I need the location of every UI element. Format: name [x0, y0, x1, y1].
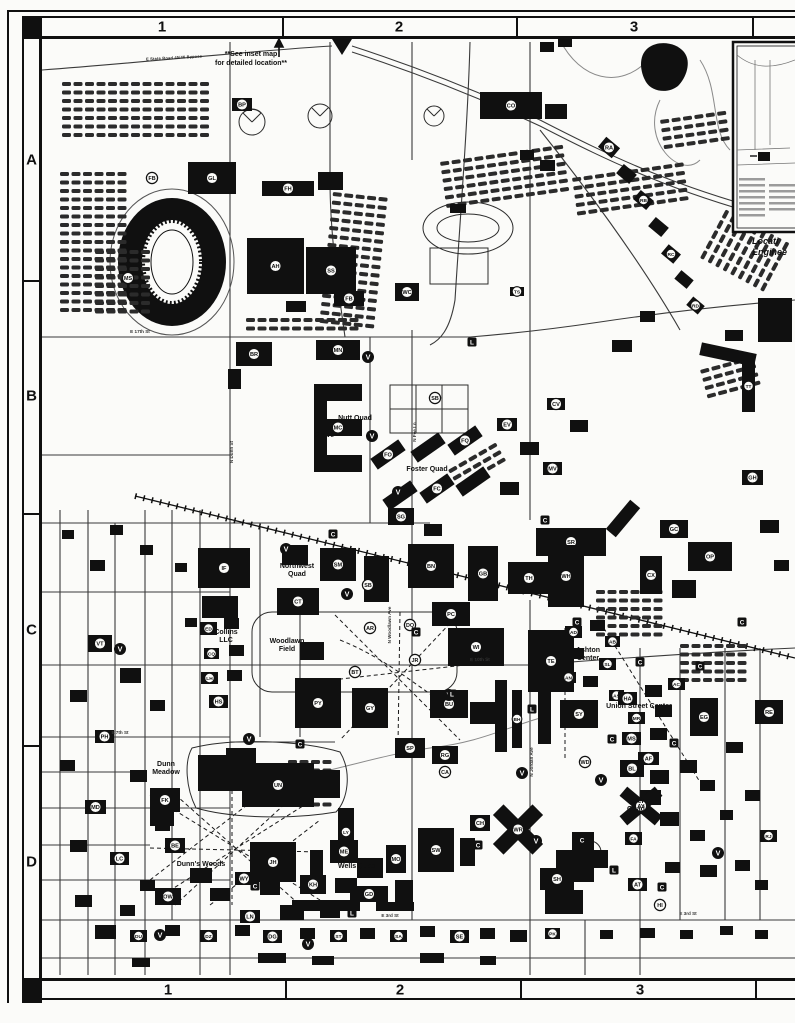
building: RB	[633, 189, 655, 210]
building-footprint	[229, 645, 244, 656]
building-footprint	[660, 812, 679, 826]
building-code-text: BR	[250, 352, 258, 358]
building-footprint	[455, 466, 490, 496]
building-code-text: BN	[427, 564, 435, 570]
building	[480, 956, 496, 965]
building-code-text: GC	[670, 527, 678, 533]
building: SW	[418, 828, 454, 872]
building	[726, 742, 743, 753]
building: AT	[628, 878, 647, 891]
building-code-text: TS	[514, 289, 521, 295]
building	[318, 172, 343, 190]
grid-corner-bottomleft	[22, 978, 42, 1003]
building: SY	[560, 700, 598, 728]
building-code: EV	[501, 419, 512, 430]
building-code: AH	[270, 260, 281, 271]
building-code: RC	[666, 249, 676, 259]
building-code-text: FB	[345, 296, 352, 302]
building-footprint	[700, 865, 717, 877]
building-code-text: SG	[397, 514, 405, 520]
building-code: SG	[395, 511, 406, 522]
building-code: BP	[236, 99, 247, 110]
parking-lot	[440, 145, 569, 208]
building: CO	[480, 92, 542, 119]
building-footprint	[510, 930, 527, 942]
bus-stop-letter: C	[660, 884, 665, 891]
building	[302, 770, 340, 798]
building	[455, 466, 490, 496]
building-code-text: VT	[96, 641, 104, 647]
grid-row-label-B: B	[26, 388, 37, 405]
building-code-text: GH	[748, 475, 756, 481]
building-footprint	[202, 596, 238, 618]
building-footprint	[140, 545, 153, 555]
building-footprint	[520, 442, 539, 455]
building-code-text: CV	[552, 402, 560, 408]
building-code-text: LC	[116, 856, 123, 862]
building-code: BR	[248, 348, 259, 359]
building-footprint	[500, 482, 519, 495]
building	[720, 926, 733, 935]
building	[500, 482, 519, 495]
code-circle-text: CA	[441, 770, 449, 776]
visitor-parking-v: V	[345, 590, 350, 599]
code-circle-text: AR	[366, 626, 374, 632]
grid-divider	[24, 513, 39, 515]
building-code-text: RE	[765, 710, 773, 716]
building: FH	[262, 181, 314, 196]
building-code: MD	[90, 801, 101, 812]
building-code-text: RB	[640, 198, 647, 204]
building-code: VT	[94, 638, 105, 649]
building-code: BE	[169, 840, 180, 851]
building	[226, 748, 256, 764]
building-code-text: TH	[525, 576, 532, 582]
building-code-text: WY	[239, 876, 248, 882]
building	[424, 524, 442, 536]
building-code-text: OP	[706, 554, 714, 560]
building-footprint	[312, 956, 334, 965]
building-code: HS	[213, 696, 224, 707]
building: AN	[561, 672, 576, 683]
building-code: PC	[445, 608, 456, 619]
building-code: AC	[672, 679, 682, 689]
building: RC	[661, 244, 682, 265]
bus-stop-letter: C	[740, 619, 745, 626]
building-code: WC	[401, 286, 412, 297]
code-circle-text: WD	[581, 760, 590, 766]
building: CQ	[204, 648, 219, 659]
building-code: RD	[691, 301, 701, 311]
building: MR	[628, 712, 645, 724]
visitor-parking-v: V	[534, 837, 539, 846]
building-footprint	[318, 172, 343, 190]
building-code-text: HA	[623, 696, 631, 702]
building	[95, 925, 116, 939]
building	[420, 953, 444, 963]
grid-col-label-1: 1	[158, 19, 166, 36]
building-code: ST	[334, 931, 344, 941]
building-footprint	[450, 204, 466, 213]
building-code-text: GD	[365, 892, 373, 898]
building: WH	[548, 545, 584, 607]
building	[120, 668, 141, 683]
building-code-text: AT	[634, 882, 642, 888]
building-code-text: CO	[507, 103, 516, 109]
grid-divider	[24, 280, 39, 282]
building	[755, 880, 768, 890]
building-footprint	[210, 888, 230, 901]
building: DU	[130, 930, 147, 942]
building-code: AB	[608, 637, 618, 647]
building-code: LY	[341, 827, 351, 837]
building: SL	[599, 658, 616, 670]
building-code-text: KH	[309, 882, 317, 888]
grid-col-label-bottom-2: 2	[396, 981, 404, 998]
street-label: E 17th St	[130, 329, 150, 334]
building-footprint	[640, 928, 655, 938]
building-code: MO	[390, 853, 401, 864]
building-code: GD	[363, 888, 374, 899]
inset-caption: Locati Enginee	[752, 236, 795, 259]
area-label: AshtonCenter	[576, 647, 600, 662]
building-footprint	[132, 958, 150, 967]
building	[520, 442, 539, 455]
code-circle-text: SB	[431, 396, 439, 402]
building-code: FK	[159, 794, 170, 805]
building-footprint	[720, 926, 733, 935]
building-code-text: GL	[208, 176, 216, 182]
building	[190, 868, 212, 883]
area-label: CollinsLLC	[214, 629, 237, 644]
building-footprint	[70, 690, 87, 702]
building-code: ME	[338, 846, 349, 857]
building	[120, 905, 135, 916]
building-code: RE	[763, 706, 774, 717]
bus-stop-letter: C	[331, 531, 336, 538]
building	[700, 865, 717, 877]
building-code: SY	[573, 708, 584, 719]
building-footprint	[224, 618, 239, 629]
building-code-text: CQ	[208, 651, 215, 657]
pond-blob	[641, 43, 688, 91]
building-footprint	[640, 311, 655, 322]
building-code: SM	[332, 559, 343, 570]
building-code: CO	[505, 100, 516, 111]
building-code: WI	[470, 641, 481, 652]
building-footprint	[310, 850, 323, 878]
building	[520, 150, 534, 160]
building	[314, 384, 327, 472]
code-circle-text: FB	[148, 176, 155, 182]
building: CX	[640, 556, 662, 594]
building-code-text: SE	[456, 934, 464, 940]
building-footprint	[226, 748, 256, 764]
building-code-text: MO	[391, 857, 401, 863]
visitor-parking-v: V	[599, 776, 604, 785]
building-code: WH	[560, 570, 571, 581]
inset-caption-line1: Locati	[752, 236, 795, 247]
building: FO	[370, 438, 407, 470]
building-footprint	[227, 670, 242, 681]
building	[227, 670, 242, 681]
building-footprint	[680, 760, 697, 773]
building: JH	[250, 842, 296, 882]
building	[75, 895, 92, 907]
area-label: Foster Quad	[406, 466, 447, 473]
building: GH	[742, 470, 763, 485]
building-code-text: GB	[479, 571, 487, 577]
area-label: Nutt Quad	[338, 415, 372, 422]
building-code-text: BU	[445, 702, 453, 708]
building	[690, 830, 705, 841]
building	[612, 340, 632, 352]
building	[672, 580, 696, 598]
building-code-text: RA	[605, 145, 613, 151]
building-code: AT	[632, 879, 643, 890]
building: GD	[350, 886, 388, 902]
building-footprint	[360, 928, 375, 939]
building-footprint	[420, 926, 435, 937]
building-code-text: JH	[269, 860, 276, 866]
building: BE	[165, 838, 185, 853]
building-code: AN	[564, 673, 574, 683]
area-label: WoodlawnField	[270, 638, 305, 653]
building-footprint	[75, 895, 92, 907]
building-code-text: AH	[271, 264, 279, 270]
road-junction-wedge	[332, 39, 352, 55]
street-label: E 10th St	[470, 657, 490, 662]
building-code-text: PC	[447, 612, 455, 618]
building-footprint	[520, 150, 534, 160]
building: DZ	[200, 930, 217, 942]
building-footprint	[470, 702, 498, 724]
visitor-parking-v: V	[716, 849, 721, 858]
building-footprint	[650, 770, 669, 784]
building-footprint	[120, 905, 135, 916]
building: VT	[88, 635, 112, 652]
building-code-text: AB	[609, 639, 616, 645]
building-code: MN	[332, 344, 343, 355]
building-code-text: AD	[570, 630, 577, 636]
building	[229, 645, 244, 656]
building: MN	[316, 340, 360, 360]
building	[150, 810, 174, 826]
building-code: RG	[439, 749, 450, 760]
building: RD	[685, 295, 705, 315]
building	[538, 692, 551, 744]
building	[286, 301, 306, 312]
building: DG	[263, 930, 282, 943]
building: GL	[188, 162, 236, 194]
grid-divider	[516, 18, 518, 36]
building: LH	[201, 672, 218, 684]
building-footprint	[258, 953, 286, 963]
building-code: TT	[744, 381, 754, 391]
building-code-text: DZ	[205, 934, 211, 940]
building	[175, 563, 187, 572]
building: OP	[688, 542, 732, 571]
parking-lot	[62, 82, 209, 137]
scanned-campus-map-page: 123 ABCD 123	[0, 0, 795, 1023]
building: GC	[660, 520, 688, 538]
building: ME	[330, 840, 358, 863]
building-code: SA	[394, 931, 404, 941]
building-code: MV	[547, 463, 558, 474]
campus-map-canvas: GLFHBPCORARBRCRDAHSSFBWCTSBRMNMCFOFQFCEV…	[42, 39, 795, 978]
see-inset-note: **See inset map for detailed location**	[196, 50, 306, 69]
building	[70, 840, 87, 852]
building-code: IF	[218, 562, 229, 573]
building-footprint	[590, 620, 605, 631]
building-code: FO	[382, 449, 393, 460]
building-footprint	[150, 700, 165, 711]
bus-stop-letter: L	[530, 706, 534, 713]
building-code: UN	[272, 779, 283, 790]
area-label: Grove	[314, 432, 334, 439]
building-code-text: FA	[630, 836, 637, 842]
building: BP	[232, 98, 252, 111]
building-footprint	[758, 298, 792, 342]
building	[570, 420, 588, 432]
building-footprint	[420, 953, 444, 963]
building	[310, 850, 323, 878]
building: BR	[236, 342, 272, 366]
street-label: E 3rd St	[381, 913, 399, 918]
building: ST	[330, 930, 347, 942]
building	[680, 760, 697, 773]
building: AB	[605, 636, 620, 647]
building-footprint	[570, 420, 588, 432]
building	[645, 685, 662, 697]
building-code-text: LN	[246, 914, 253, 920]
building: SA	[390, 930, 407, 942]
street-label: N Jordan Ave	[529, 747, 534, 777]
building: RE	[755, 700, 783, 724]
building-code: PH	[99, 731, 110, 742]
parking-lot	[60, 172, 127, 312]
building: SP	[395, 738, 425, 758]
building-code: AD	[569, 627, 579, 637]
building: PY	[295, 678, 341, 728]
building-code-text: WR	[513, 827, 522, 833]
building	[150, 700, 165, 711]
building-code: CX	[645, 569, 656, 580]
bus-stop-letter: C	[638, 659, 643, 666]
building-code: MR	[632, 713, 642, 723]
building-footprint	[235, 925, 250, 936]
building: OW	[155, 888, 181, 905]
building-footprint	[314, 384, 327, 472]
building-code-text: SS	[327, 268, 335, 274]
building	[62, 530, 74, 539]
building-code-text: SP	[406, 746, 414, 752]
building-footprint	[140, 880, 155, 891]
building	[650, 770, 669, 784]
building-footprint	[110, 525, 123, 535]
building: TT	[742, 360, 755, 412]
inset-map	[733, 42, 795, 232]
building-code-text: RC	[668, 252, 675, 258]
building: AH	[247, 238, 304, 294]
grid-corner-topleft	[22, 16, 42, 41]
building-code: DZ	[204, 931, 214, 941]
building-code-text: SL	[604, 662, 610, 668]
building-code: MS	[626, 733, 637, 744]
building-code: SE	[454, 931, 465, 942]
building: HS	[209, 695, 228, 708]
bus-stop-letter: C	[575, 619, 580, 626]
bus-stop-letter: L	[612, 867, 616, 874]
building-footprint	[95, 925, 116, 939]
building	[228, 369, 241, 389]
building-code-text: MD	[91, 805, 100, 811]
street-label: N Fee Ln	[412, 422, 417, 442]
building	[720, 810, 733, 820]
building	[110, 525, 123, 535]
building: SG	[388, 508, 414, 525]
code-circle-text: SB	[364, 583, 372, 589]
building-footprint	[175, 563, 187, 572]
building: CH	[470, 815, 490, 831]
building: LC	[110, 852, 129, 865]
building: FB	[334, 291, 364, 306]
bus-stop-letter: C	[672, 740, 677, 747]
bus-stop-letter: C	[543, 517, 548, 524]
bus-stop-letter: C	[414, 629, 419, 636]
visitor-parking-v: V	[370, 432, 375, 441]
building-code-text: UN	[274, 783, 282, 789]
see-inset-note-line1: **See inset map	[196, 50, 306, 59]
building-code: CH	[474, 817, 485, 828]
building-code-text: WI	[473, 645, 480, 651]
building-code: FH	[282, 183, 293, 194]
building-code-text: MR	[633, 716, 641, 722]
building-footprint	[300, 928, 315, 939]
building	[665, 862, 680, 873]
building-footprint	[560, 905, 573, 914]
building	[258, 953, 286, 963]
building-code-text: GY	[366, 706, 374, 712]
area-label: DunnMeadow	[152, 761, 180, 776]
building-code-text: PH	[101, 734, 109, 740]
building-code: AF	[643, 753, 654, 764]
building	[312, 956, 334, 965]
building-footprint	[480, 956, 496, 965]
building: FK	[150, 788, 180, 812]
building-footprint	[612, 340, 632, 352]
building	[165, 925, 180, 936]
building-code: JH	[267, 856, 278, 867]
building: MV	[543, 462, 562, 475]
building-code-text: PY	[314, 701, 322, 707]
grid-row-label-A: A	[26, 152, 37, 169]
building-footprint	[672, 580, 696, 598]
grid-col-label-3: 3	[630, 19, 638, 36]
inset-caption-line2: Enginee	[752, 247, 795, 258]
building-code-text: CX	[647, 573, 655, 579]
see-inset-note-line2: for detailed location**	[196, 59, 306, 68]
building-footprint	[538, 692, 551, 744]
building-footprint	[665, 862, 680, 873]
building-code-text: FK	[161, 798, 168, 804]
building	[725, 330, 743, 341]
building-code: SL	[603, 659, 613, 669]
building-footprint	[735, 860, 750, 871]
grid-strip-bottom: 123	[22, 978, 795, 1000]
building-code-text: EV	[503, 422, 511, 428]
building-footprint	[480, 928, 495, 939]
